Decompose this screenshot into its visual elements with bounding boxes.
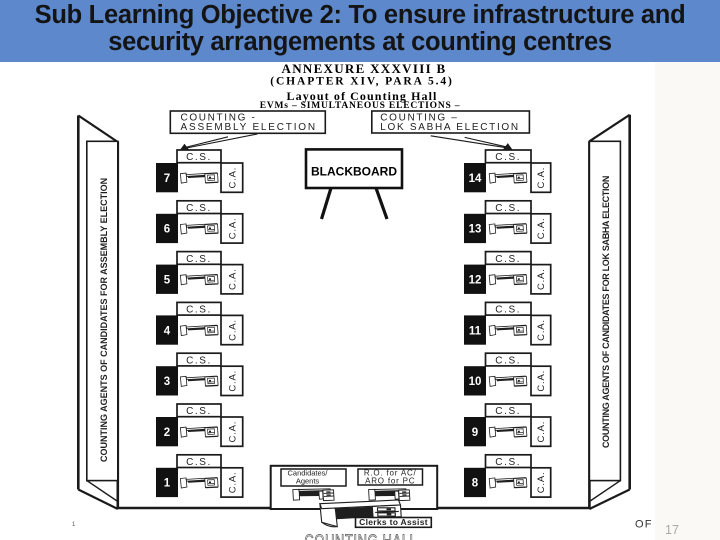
svg-text:C.S.: C.S.	[186, 457, 212, 468]
svg-text:6: 6	[164, 224, 170, 236]
svg-text:10: 10	[469, 376, 482, 388]
svg-text:C.S.: C.S.	[186, 254, 212, 265]
svg-text:C.S.: C.S.	[495, 406, 521, 417]
svg-text:C.A.: C.A.	[536, 218, 547, 240]
svg-text:C.A.: C.A.	[536, 319, 547, 341]
svg-text:C.S.: C.S.	[495, 152, 521, 163]
svg-text:C.A.: C.A.	[228, 167, 239, 189]
svg-text:1: 1	[164, 478, 171, 490]
svg-text:C.S.: C.S.	[186, 355, 212, 366]
svg-text:11: 11	[469, 325, 482, 337]
svg-text:C.S.: C.S.	[495, 457, 521, 468]
svg-text:C.S.: C.S.	[495, 305, 521, 316]
svg-text:C.A.: C.A.	[228, 268, 239, 290]
svg-text:LOK SABHA ELECTION: LOK SABHA ELECTION	[380, 122, 520, 133]
svg-text:ASSEMBLY ELECTION: ASSEMBLY ELECTION	[181, 122, 317, 133]
svg-text:BLACKBOARD: BLACKBOARD	[311, 165, 397, 179]
svg-text:9: 9	[472, 427, 478, 439]
svg-text:C.S.: C.S.	[186, 203, 212, 214]
svg-text:C.A.: C.A.	[228, 421, 239, 443]
svg-text:C.A.: C.A.	[228, 218, 239, 240]
svg-text:C.A.: C.A.	[536, 370, 547, 392]
svg-text:12: 12	[469, 275, 482, 287]
svg-text:C.S.: C.S.	[186, 305, 212, 316]
svg-text:14: 14	[469, 173, 482, 185]
svg-text:(CHAPTER XIV, PARA 5.4): (CHAPTER XIV, PARA 5.4)	[270, 76, 454, 88]
svg-text:5: 5	[164, 275, 171, 287]
svg-text:OF: OF	[635, 519, 653, 531]
svg-text:C.A.: C.A.	[536, 167, 547, 189]
svg-text:3: 3	[164, 376, 170, 388]
svg-text:C.S.: C.S.	[495, 355, 521, 366]
svg-text:Clerks to Assist: Clerks to Assist	[359, 517, 428, 527]
svg-text:C.A.: C.A.	[228, 319, 239, 341]
svg-text:COUNTING AGENTS OF CANDIDATES: COUNTING AGENTS OF CANDIDATES FOR LOK SA…	[601, 176, 611, 448]
svg-text:C.S.: C.S.	[186, 406, 212, 417]
svg-text:C.A.: C.A.	[228, 472, 239, 494]
svg-text:C.S.: C.S.	[495, 203, 521, 214]
svg-text:8: 8	[472, 478, 479, 490]
svg-text:C.A.: C.A.	[536, 268, 547, 290]
svg-text:4: 4	[164, 325, 171, 337]
svg-text:2: 2	[164, 427, 170, 439]
svg-text:7: 7	[164, 173, 170, 185]
svg-text:C.A.: C.A.	[228, 370, 239, 392]
svg-text:C.A.: C.A.	[536, 472, 547, 494]
svg-text:13: 13	[469, 224, 482, 236]
svg-text:Agents: Agents	[296, 476, 320, 485]
svg-text:1: 1	[72, 522, 76, 528]
svg-text:EVMs – SIMULTANEOUS ELECTIONS: EVMs – SIMULTANEOUS ELECTIONS –	[260, 101, 461, 111]
svg-text:ARO for PC: ARO for PC	[365, 476, 415, 485]
svg-text:C.S.: C.S.	[186, 152, 212, 163]
svg-text:ANNEXURE XXXVIII B: ANNEXURE XXXVIII B	[282, 61, 447, 76]
svg-text:COUNTING AGENTS OF CANDIDATES: COUNTING AGENTS OF CANDIDATES FOR ASSEMB…	[99, 178, 109, 462]
svg-text:C.S.: C.S.	[495, 254, 521, 265]
svg-text:COUNTING HALL: COUNTING HALL	[305, 530, 418, 540]
svg-text:C.A.: C.A.	[536, 421, 547, 443]
